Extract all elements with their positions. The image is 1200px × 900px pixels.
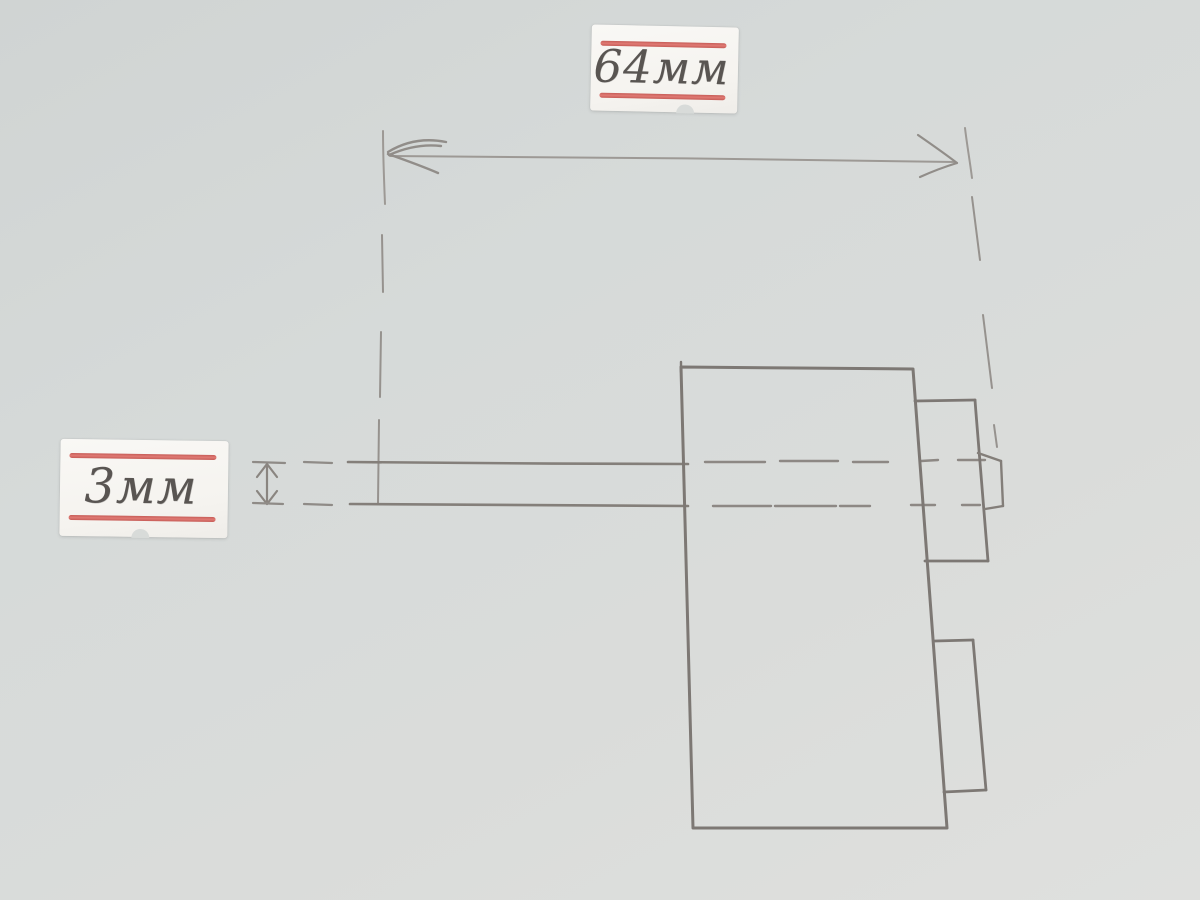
hidden-blade-lines (705, 460, 985, 506)
body-outline (681, 362, 947, 828)
dimension-line (390, 156, 955, 162)
length-dimension (378, 128, 997, 503)
arrowhead-right-icon (918, 135, 957, 177)
blade-bottom-edge (350, 504, 688, 506)
left-tick (383, 131, 385, 204)
blade-top-edge (348, 462, 688, 464)
right-tick (965, 128, 972, 178)
blade-outline (348, 462, 688, 506)
length-label-sticker: 64мм (590, 24, 739, 113)
paper-sketch-photo: 64мм 3мм (0, 0, 1200, 900)
thickness-label-sticker: 3мм (59, 439, 228, 538)
thickness-dimension (253, 462, 332, 505)
